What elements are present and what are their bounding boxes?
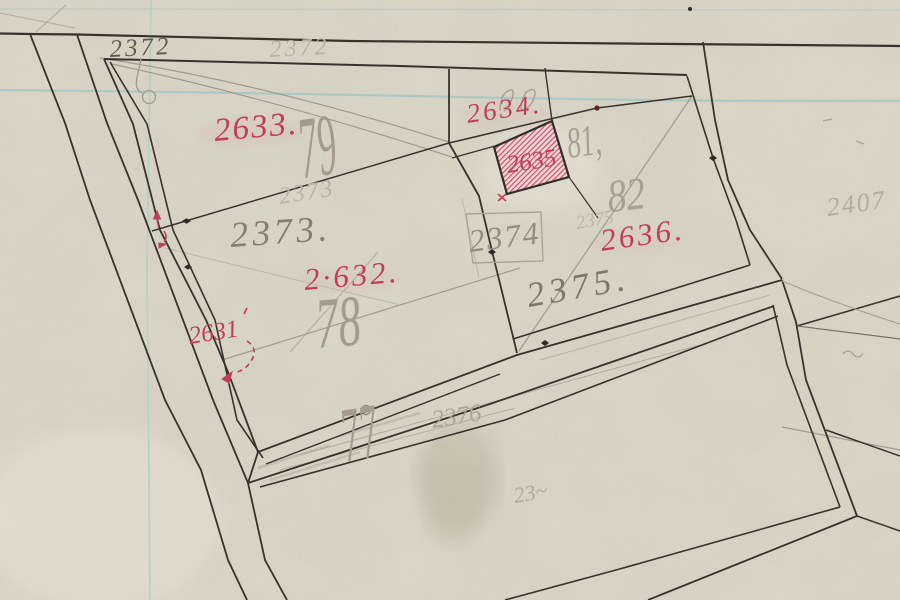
svg-text:2372: 2372 — [269, 34, 330, 63]
svg-text:78: 78 — [312, 281, 363, 364]
svg-text:81,: 81, — [563, 114, 604, 168]
svg-text:2372: 2372 — [109, 33, 172, 63]
svg-text:2373.: 2373. — [229, 208, 333, 255]
svg-text:2633.: 2633. — [213, 106, 300, 149]
